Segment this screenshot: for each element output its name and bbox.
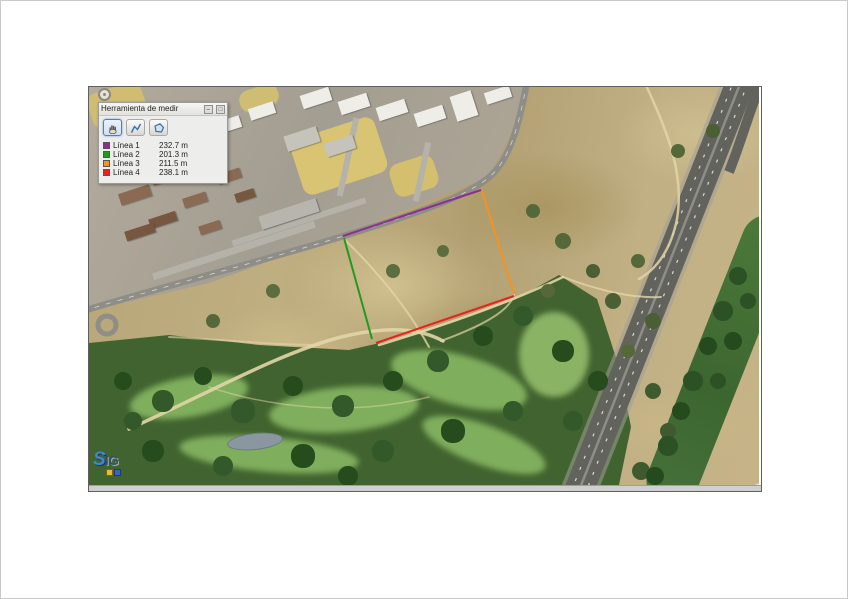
logo-dot-yellow bbox=[106, 469, 113, 476]
line-3-length: 211.5 m bbox=[159, 159, 187, 168]
measurement-row: Línea 4 238.1 m bbox=[103, 168, 223, 177]
measurement-row: Línea 3 211.5 m bbox=[103, 159, 223, 168]
hand-tool-button[interactable] bbox=[103, 119, 122, 136]
line-2-length: 201.3 m bbox=[159, 150, 188, 159]
logo-letter: S bbox=[93, 449, 106, 471]
measure-line-2 bbox=[344, 238, 372, 339]
measure-area-button[interactable] bbox=[149, 119, 168, 136]
hand-icon bbox=[107, 122, 119, 134]
line-4-color-swatch bbox=[103, 169, 110, 176]
measurement-list: Línea 1 232.7 m Línea 2 201.3 m Línea 3 … bbox=[99, 138, 227, 183]
measure-line-3 bbox=[482, 191, 514, 294]
measure-line-button[interactable] bbox=[126, 119, 145, 136]
map-window: Herramienta de medir – □ bbox=[88, 86, 762, 492]
measurement-row: Línea 2 201.3 m bbox=[103, 150, 223, 159]
polygon-icon bbox=[153, 122, 165, 134]
maximize-button[interactable]: □ bbox=[216, 105, 225, 114]
line-1-length: 232.7 m bbox=[159, 141, 188, 150]
line-2-label: Línea 2 bbox=[113, 150, 159, 159]
map-viewport[interactable]: Herramienta de medir – □ bbox=[89, 87, 759, 485]
measure-line-4 bbox=[376, 296, 514, 343]
measure-tool-window: Herramienta de medir – □ bbox=[98, 102, 228, 184]
line-4-length: 238.1 m bbox=[159, 168, 188, 177]
measurement-row: Línea 1 232.7 m bbox=[103, 141, 223, 150]
line-4-label: Línea 4 bbox=[113, 168, 159, 177]
line-1-label: Línea 1 bbox=[113, 141, 159, 150]
attribution-link[interactable]: Más información bbox=[756, 484, 759, 485]
document-page: Herramienta de medir – □ bbox=[0, 0, 848, 599]
window-title: Herramienta de medir bbox=[101, 103, 203, 115]
minimize-button[interactable]: – bbox=[204, 105, 213, 114]
pan-control[interactable] bbox=[98, 88, 111, 101]
line-3-label: Línea 3 bbox=[113, 159, 159, 168]
line-2-color-swatch bbox=[103, 151, 110, 158]
line-3-color-swatch bbox=[103, 160, 110, 167]
line-1-color-swatch bbox=[103, 142, 110, 149]
window-titlebar[interactable]: Herramienta de medir – □ bbox=[99, 103, 227, 116]
measure-line-1 bbox=[343, 190, 481, 236]
logo-letters: IG bbox=[105, 453, 119, 468]
frame-bottom-strip bbox=[89, 485, 761, 491]
polyline-icon bbox=[130, 122, 142, 134]
sig-logo: S IG bbox=[93, 449, 153, 483]
logo-dot-blue bbox=[114, 469, 121, 476]
tool-buttons bbox=[99, 116, 227, 138]
